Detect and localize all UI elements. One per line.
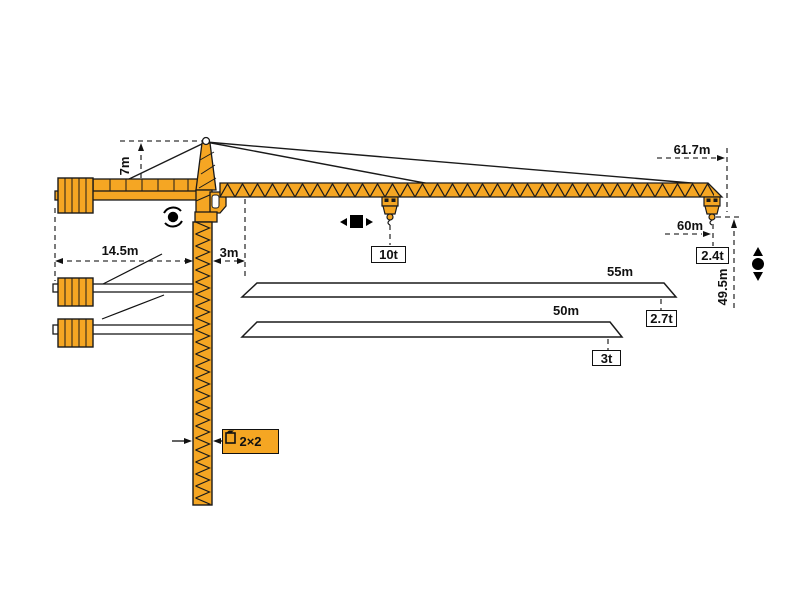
crane-diagram: 7m 14.5m 3m 61.7m 60m 49.5m 55m 50m 10t … — [0, 0, 800, 600]
slewing-unit — [195, 212, 217, 222]
counterjib-girder — [93, 179, 198, 192]
mast-section-label: 2×2 — [239, 434, 261, 449]
jib-bar-50m — [242, 322, 622, 337]
ballast-block-2 — [58, 319, 93, 347]
trolley-mid — [382, 197, 398, 225]
crane-drawing — [0, 0, 800, 600]
full-radius-label: 61.7m — [667, 142, 717, 158]
slewing-icon — [164, 208, 182, 227]
max-load-badge: 10t — [371, 246, 406, 263]
jib50-length-label: 50m — [546, 303, 586, 319]
counterweight-block — [58, 178, 93, 213]
tip-load-55-badge: 2.7t — [646, 310, 677, 327]
jib — [220, 183, 722, 197]
radius60-label: 60m — [672, 218, 708, 234]
jib-lattice — [220, 183, 714, 197]
jib-tie-bar-1 — [206, 142, 430, 184]
hoist-up-down-icon — [752, 247, 764, 281]
counterjib-tie-bar — [127, 142, 206, 180]
apex-pin — [203, 138, 210, 145]
slew-offset-label: 3m — [214, 245, 244, 261]
jib-bar-55m — [242, 283, 676, 297]
anchor-frames — [53, 278, 193, 347]
mast-section-icon — [223, 430, 237, 444]
mast-section-badge: 2×2 — [222, 429, 279, 454]
head-height-label: 7m — [117, 151, 133, 181]
hook-height-label: 49.5m — [715, 265, 731, 309]
tip-load-full-badge: 2.4t — [696, 247, 729, 264]
cab-window — [212, 195, 219, 208]
counterjib-length-label: 14.5m — [95, 243, 145, 259]
hook-mid — [387, 214, 393, 220]
jib55-length-label: 55m — [600, 264, 640, 280]
hook-tip — [709, 214, 715, 220]
mast-lattice — [193, 222, 212, 505]
jib-tie-bar-2 — [206, 142, 703, 184]
trolley-travel-icon — [340, 215, 373, 228]
tip-load-50-badge: 3t — [592, 350, 621, 366]
ballast-block-1 — [58, 278, 93, 306]
jib-option-bars — [242, 283, 676, 337]
